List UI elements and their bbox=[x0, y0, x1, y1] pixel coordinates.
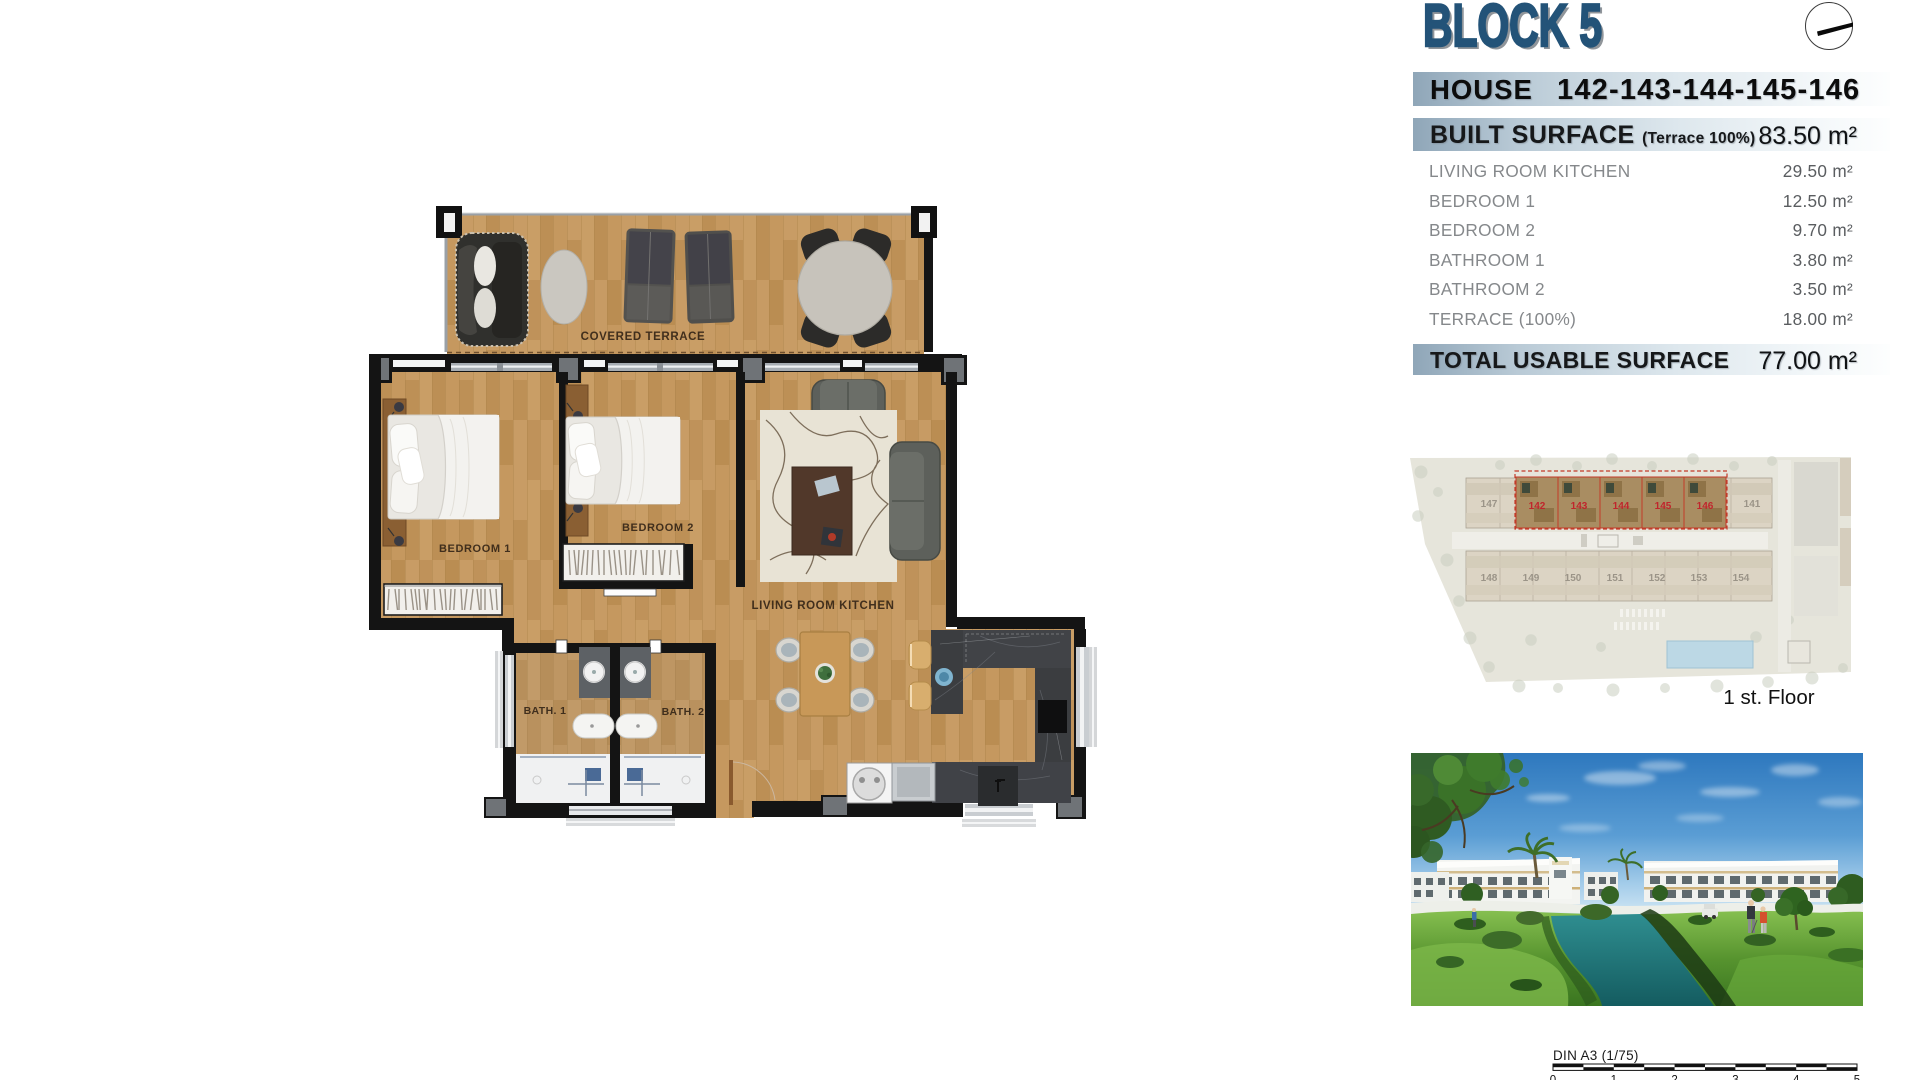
svg-text:5: 5 bbox=[1854, 1075, 1860, 1080]
svg-text:152: 152 bbox=[1649, 573, 1666, 584]
svg-text:BEDROOM 1: BEDROOM 1 bbox=[439, 543, 511, 555]
svg-text:0: 0 bbox=[1550, 1075, 1556, 1080]
svg-text:151: 151 bbox=[1607, 573, 1624, 584]
svg-text:4: 4 bbox=[1793, 1075, 1800, 1080]
svg-text:149: 149 bbox=[1523, 573, 1540, 584]
svg-text:153: 153 bbox=[1691, 573, 1708, 584]
svg-text:1 st. Floor: 1 st. Floor bbox=[1723, 686, 1814, 709]
svg-text:COVERED TERRACE: COVERED TERRACE bbox=[581, 331, 706, 343]
svg-text:3: 3 bbox=[1732, 1075, 1738, 1080]
svg-text:BEDROOM 2: BEDROOM 2 bbox=[622, 522, 694, 534]
svg-text:1: 1 bbox=[1611, 1075, 1617, 1080]
svg-text:150: 150 bbox=[1565, 573, 1582, 584]
svg-text:141: 141 bbox=[1744, 499, 1761, 510]
svg-text:142: 142 bbox=[1529, 501, 1546, 512]
svg-text:154: 154 bbox=[1733, 573, 1750, 584]
svg-text:BATH. 2: BATH. 2 bbox=[662, 706, 705, 718]
svg-text:LIVING ROOM KITCHEN: LIVING ROOM KITCHEN bbox=[751, 600, 894, 612]
svg-text:145: 145 bbox=[1655, 501, 1672, 512]
svg-text:BATH. 1: BATH. 1 bbox=[524, 705, 567, 717]
svg-text:148: 148 bbox=[1481, 573, 1498, 584]
svg-text:144: 144 bbox=[1613, 501, 1630, 512]
svg-text:2: 2 bbox=[1671, 1075, 1677, 1080]
svg-text:146: 146 bbox=[1697, 501, 1714, 512]
svg-text:143: 143 bbox=[1571, 501, 1588, 512]
svg-text:147: 147 bbox=[1481, 499, 1498, 510]
svg-text:DIN A3 (1/75): DIN A3 (1/75) bbox=[1553, 1048, 1639, 1063]
